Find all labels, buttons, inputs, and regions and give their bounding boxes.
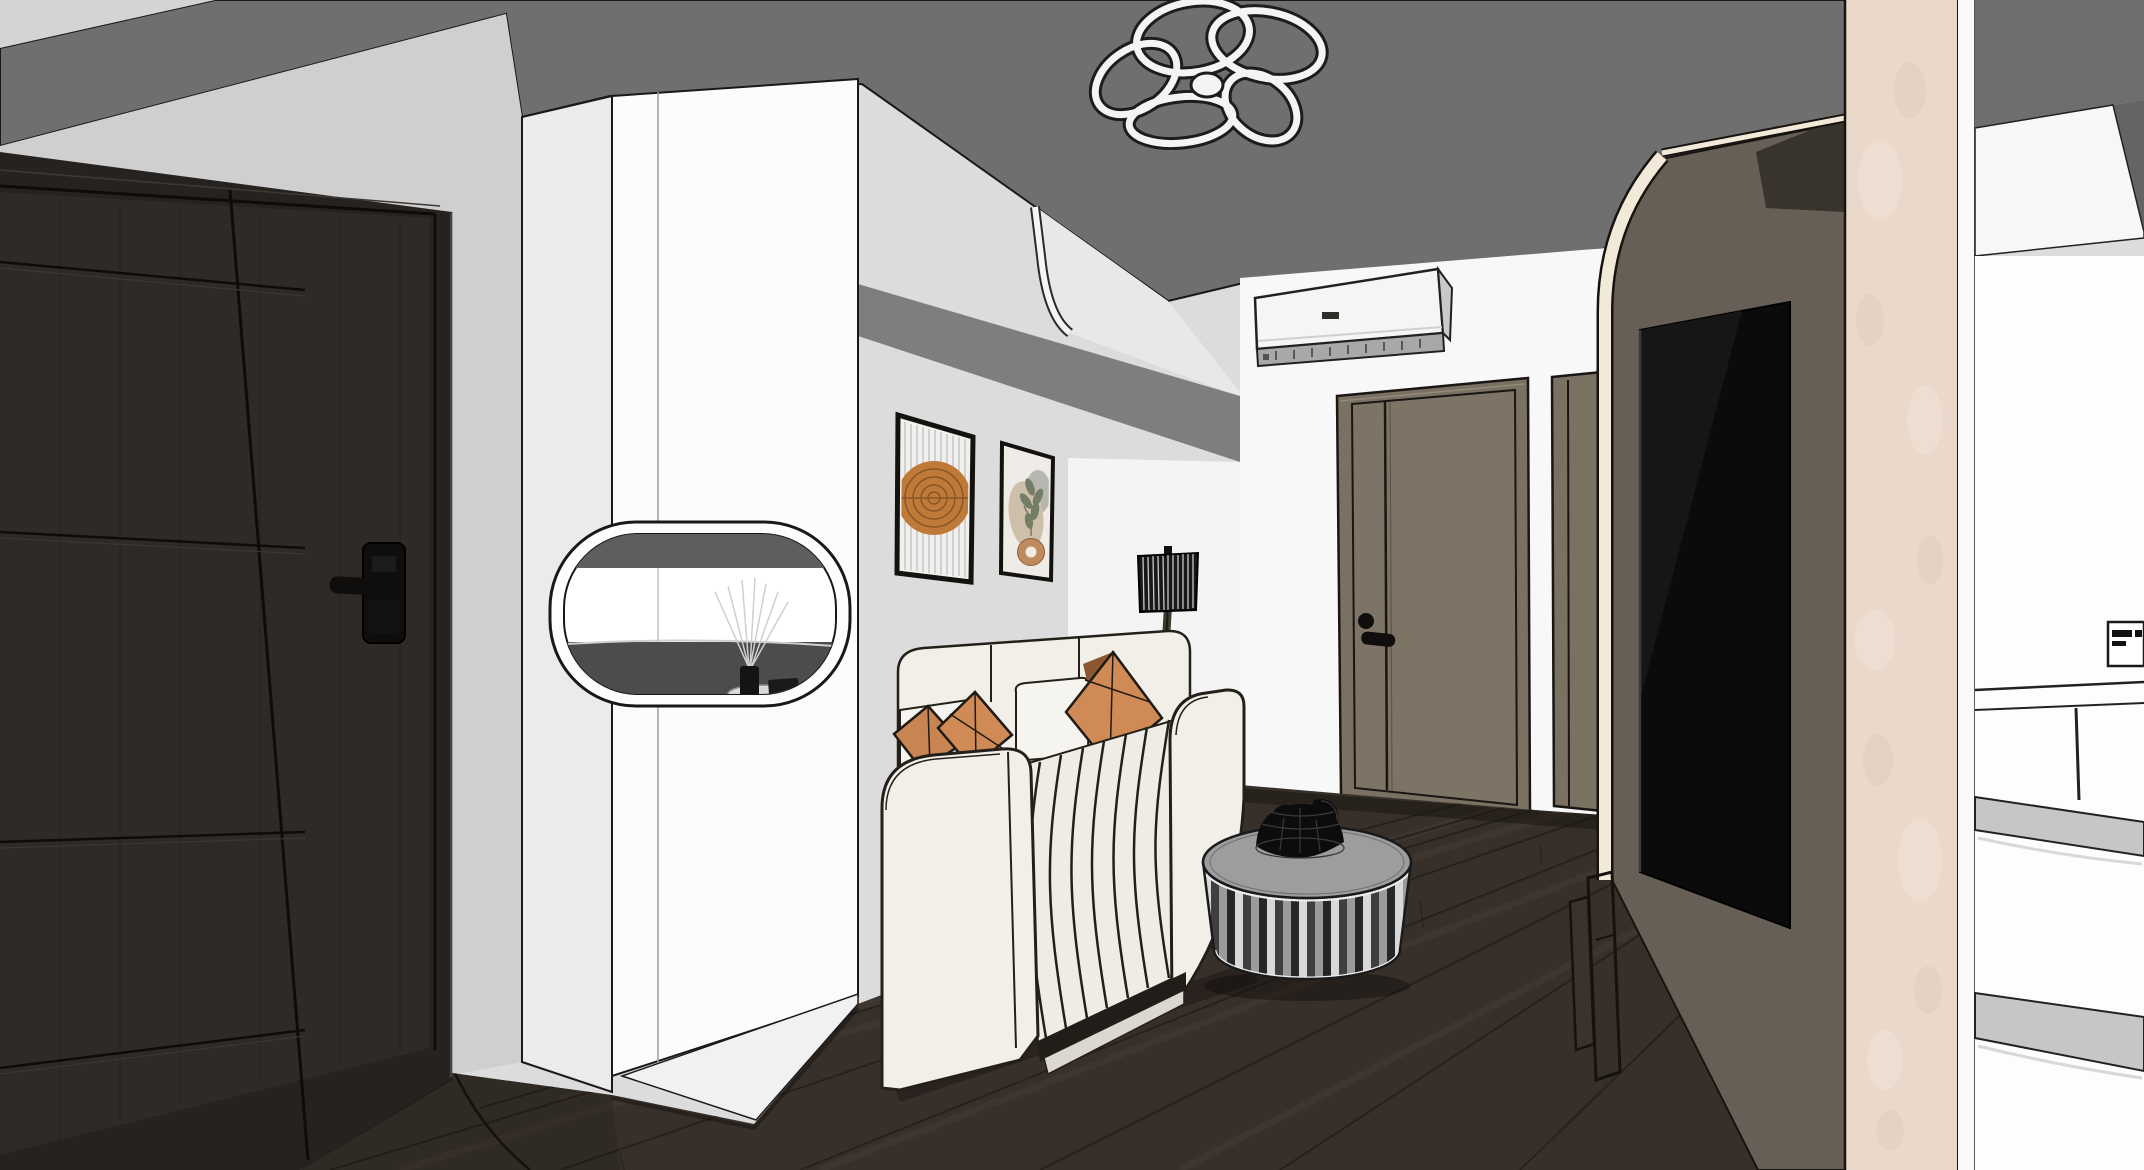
shoe-cabinet <box>522 79 858 1120</box>
render-canvas <box>0 0 2144 1170</box>
kitchen <box>1958 0 2144 1170</box>
entry-door <box>0 152 452 1170</box>
display-niche <box>550 522 850 706</box>
interior-render <box>0 0 2144 1170</box>
interior-door-1 <box>1337 378 1530 814</box>
wall-art-right <box>1001 443 1053 580</box>
tv <box>1640 302 1790 928</box>
ac-logo <box>1322 312 1339 319</box>
stone-pillar <box>1845 0 1958 1170</box>
lamp-center <box>1191 73 1223 97</box>
lock-lever <box>329 576 398 597</box>
wall-art-left <box>897 415 973 582</box>
refrigerator <box>1975 256 2144 1170</box>
fridge-brand-label <box>2108 622 2144 666</box>
sofa-arm-left <box>882 749 1038 1090</box>
kitchen-upper-cabinets <box>1975 105 2144 256</box>
